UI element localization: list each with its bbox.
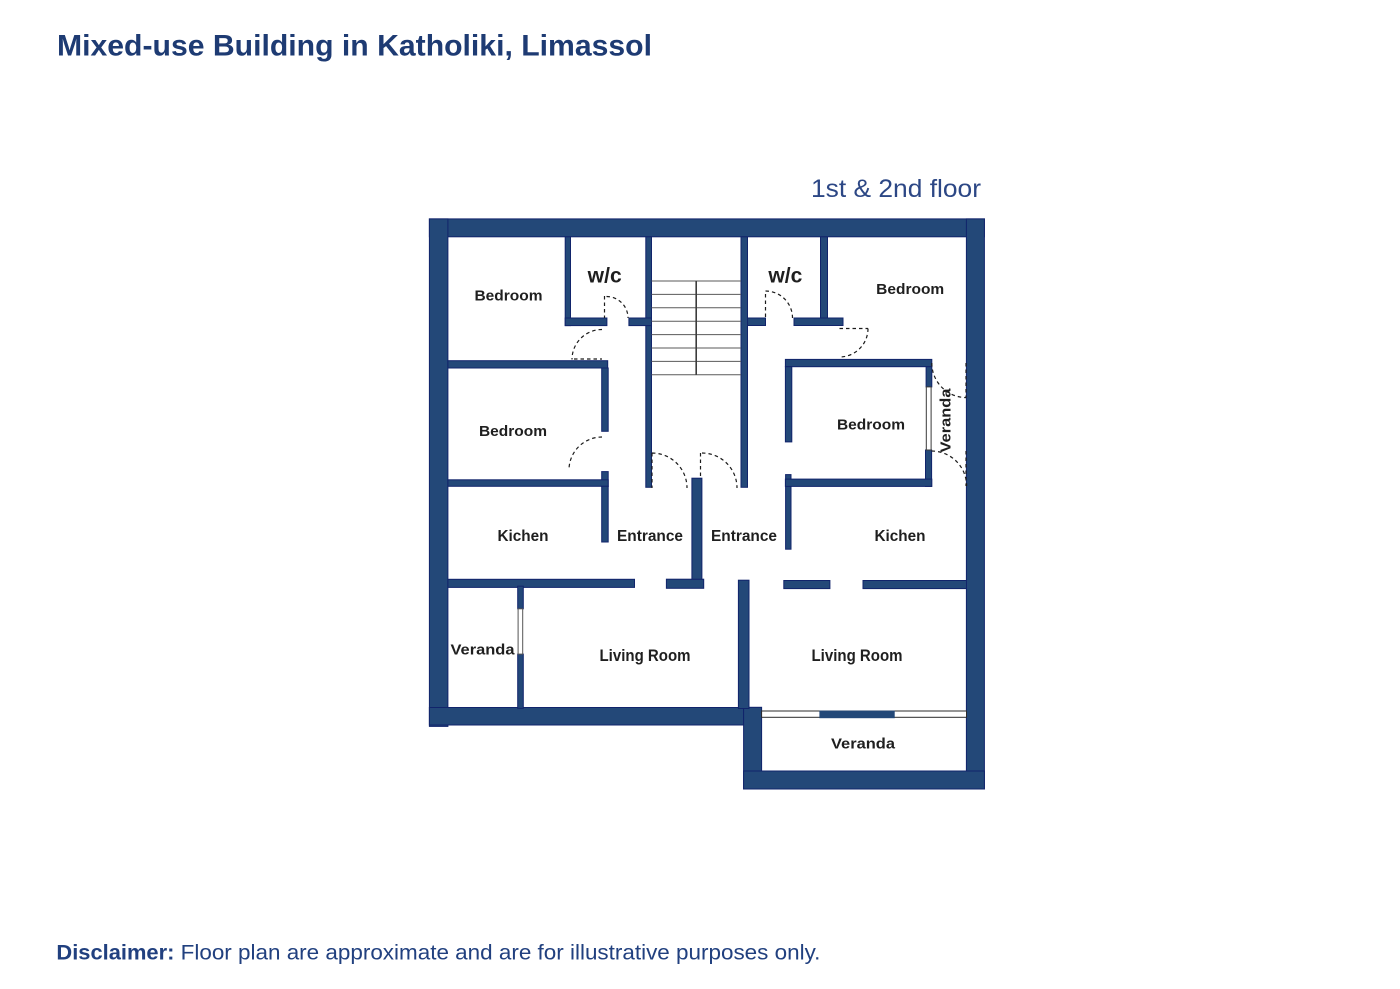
svg-text:Bedroom: Bedroom [876,281,944,298]
svg-text:Disclaimer: Floor plan are app: Disclaimer: Floor plan are approximate a… [56,942,820,965]
svg-text:Kichen: Kichen [875,528,926,545]
svg-text:Bedroom: Bedroom [475,288,543,305]
svg-text:Veranda: Veranda [451,642,516,659]
svg-text:Veranda: Veranda [831,736,896,753]
svg-text:1st & 2nd floor: 1st & 2nd floor [811,175,981,203]
svg-text:Mixed-use Building in Katholik: Mixed-use Building in Katholiki, Limasso… [57,30,652,63]
svg-text:w/c: w/c [587,265,622,288]
svg-text:Entrance: Entrance [617,528,683,545]
svg-text:Kichen: Kichen [498,528,549,545]
svg-text:Living Room: Living Room [600,646,691,665]
svg-text:Living Room: Living Room [812,646,903,665]
svg-text:w/c: w/c [767,265,802,288]
svg-text:Bedroom: Bedroom [479,423,547,440]
svg-text:Bedroom: Bedroom [837,417,905,434]
svg-text:Veranda: Veranda [938,388,955,453]
svg-text:Entrance: Entrance [711,528,777,545]
